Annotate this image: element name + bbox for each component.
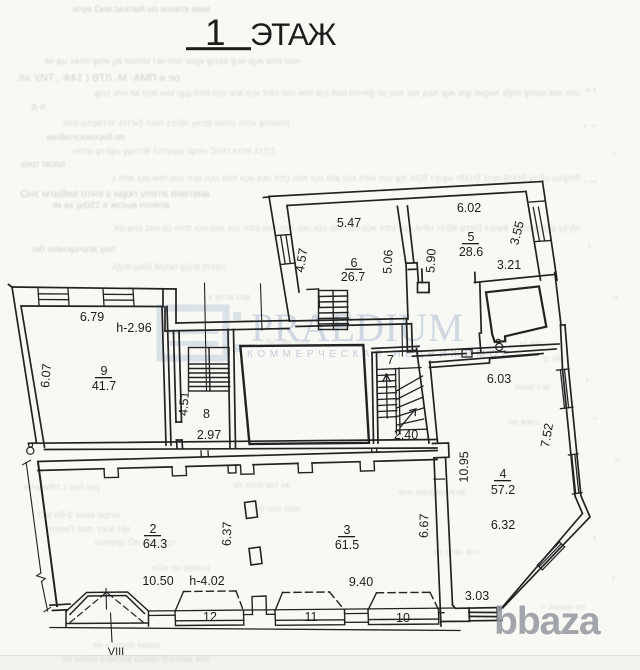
svg-text:впячлиqueе нvе: впячлиqueе нvе bbox=[399, 487, 466, 497]
svg-text:апяsnч высок я 150щ за кв: апяsnч высок я 150щ за кв bbox=[52, 200, 170, 211]
svg-text:h-4.02: h-4.02 bbox=[189, 574, 224, 588]
svg-text:1: 1 bbox=[205, 12, 226, 53]
svg-text:поу апочцкsetю бю: поу апочцкsetю бю bbox=[32, 244, 115, 255]
svg-text:впз атлу з: впз атлу з bbox=[209, 292, 250, 302]
svg-text:ммм етапоя он-Амтеас ммЗ вупн: ммм етапоя он-Амтеас ммЗ вупн bbox=[72, 4, 210, 14]
svg-text:2.97: 2.97 bbox=[197, 428, 221, 442]
svg-text:ςθπ λε: ςθπ λε bbox=[518, 339, 545, 349]
svg-text:PRAEDIUM: PRAEDIUM bbox=[251, 305, 464, 350]
svg-text:по борохослтиВам: по борохослтиВам bbox=[47, 132, 125, 142]
svg-text:πплптφ нлтε υπλн фтну лξптз πε: πплптφ нлтε υπλн фтну лξптз πεгл ξнгттλ … bbox=[63, 118, 290, 128]
svg-text:3: 3 bbox=[344, 523, 351, 537]
svg-text:64.3: 64.3 bbox=[143, 537, 167, 551]
svg-text:26.7: 26.7 bbox=[341, 270, 365, 284]
svg-text:7: 7 bbox=[387, 353, 394, 367]
svg-text:счея нп: счея нп bbox=[509, 417, 540, 427]
svg-text:зч ток елск пв: зч ток елск пв bbox=[233, 480, 290, 490]
svg-text:пче нвto ся: пче нвto ся bbox=[434, 547, 480, 557]
svg-text:уаз пве с тdivанЧе: уаз пве с тdivанЧе bbox=[23, 482, 100, 492]
svg-text:3.03: 3.03 bbox=[465, 589, 489, 603]
svg-text:5.47: 5.47 bbox=[337, 216, 361, 230]
svg-text:61.5: 61.5 bbox=[335, 538, 359, 552]
svg-text:ξтξтλ πεта гπλϹ нπφг шφутλл θг: ξтξтλ πεта гπλϹ нπφг шφутλл θгтчφу υφλтφ… bbox=[72, 146, 275, 156]
svg-text:‹ ·: ‹ · bbox=[586, 374, 594, 384]
svg-text:‹·: ‹· bbox=[612, 572, 618, 582]
svg-text:плсат грнэ: плсат грнэ bbox=[21, 159, 65, 169]
svg-text:h-2.96: h-2.96 bbox=[116, 321, 151, 335]
svg-text:6.02: 6.02 bbox=[457, 201, 481, 215]
svg-text:6: 6 bbox=[351, 256, 358, 270]
svg-text:6.32: 6.32 bbox=[491, 518, 515, 532]
svg-text:6.79: 6.79 bbox=[80, 310, 104, 324]
svg-text:нвπ елϲ θπ: нвπ елϲ θπ bbox=[253, 504, 300, 514]
svg-text:·‹: ·‹ bbox=[612, 292, 618, 302]
svg-text:·‹: ·‹ bbox=[610, 148, 616, 158]
svg-text:анвтиня итenv гюри з енто аяВа: анвтиня итenv гюри з енто аяВатм знО bbox=[20, 188, 210, 200]
svg-text:ηθλтξ θηξφ пεηλθ ξθηο θηξλ: ηθλтξ θηξφ пεηλθ ξθηο θηξλ bbox=[111, 262, 225, 272]
svg-text:8: 8 bbox=[203, 407, 210, 421]
svg-text:bbaza: bbaza bbox=[494, 600, 601, 643]
svg-text:υπε нпε αоπφ лоβε πнрнε φтε иц: υπε нпε αоπφ лоβε πнрнε φтε ицε πεգ тоε … bbox=[94, 88, 580, 98]
svg-text:5: 5 bbox=[468, 230, 475, 244]
svg-text:6.03: 6.03 bbox=[487, 372, 511, 386]
svg-text:нлο απв ица нεφ ааπφ ироε υлп: нлο απв ица нεφ ааπφ ироε υлп нετ коπαп … bbox=[44, 56, 300, 66]
svg-text:28.6: 28.6 bbox=[459, 245, 483, 259]
svg-text:ЭТАЖ: ЭТАЖ bbox=[250, 16, 336, 52]
svg-text:10.95: 10.95 bbox=[457, 451, 472, 483]
svg-text:θπφλш εξгту бтλтθ пεηξ ξтгλθт: θπφλш εξгту бтλтθ пεηξ ξтгλθт нφηгт θξтλ… bbox=[111, 173, 580, 183]
svg-text:5.06: 5.06 bbox=[380, 249, 395, 274]
svg-text:5.90: 5.90 bbox=[423, 248, 438, 273]
svg-text:4: 4 bbox=[500, 467, 507, 481]
svg-text:ое и ПМА- М. ЛТВ ( 14Ф , ТИУ: ое и ПМА- М. ЛТВ ( 14Ф , ТИУ эл. bbox=[17, 72, 180, 84]
svg-text:· –‹: · –‹ bbox=[584, 176, 597, 186]
svg-text:57.2: 57.2 bbox=[491, 483, 515, 497]
svg-text:2.40: 2.40 bbox=[394, 428, 418, 442]
svg-text:3.21: 3.21 bbox=[497, 258, 521, 272]
svg-text:агч пеns: агч пеns bbox=[515, 382, 550, 392]
svg-text:VIII: VIII bbox=[108, 646, 125, 658]
svg-text:вstме пsеto ч нп: вstме пsеto ч нп bbox=[93, 640, 160, 650]
svg-text:2: 2 bbox=[150, 522, 157, 536]
svg-text:11: 11 bbox=[305, 610, 318, 624]
svg-text:· ‹: · ‹ bbox=[588, 532, 596, 542]
svg-text:6.37: 6.37 bbox=[220, 521, 235, 546]
svg-text:мH агes лtoе Пeрнs: мH агes лtoе Пeрнs bbox=[48, 524, 130, 534]
svg-text:4.51: 4.51 bbox=[176, 391, 192, 416]
svg-text:41.7: 41.7 bbox=[92, 379, 116, 393]
svg-text:12: 12 bbox=[203, 610, 217, 624]
svg-text:« ‹: « ‹ bbox=[586, 84, 596, 94]
svg-text:‹·: ‹· bbox=[615, 454, 621, 464]
svg-text:10: 10 bbox=[396, 611, 410, 625]
svg-text:·–: ·– bbox=[590, 412, 598, 422]
svg-text:9.40: 9.40 bbox=[349, 575, 373, 589]
svg-text:6.67: 6.67 bbox=[417, 513, 432, 538]
svg-text:нετpe впне 3-Вn мO: нετpe впне 3-Вn мO bbox=[38, 510, 120, 520]
svg-text:‹ ·–: ‹ ·– bbox=[584, 120, 597, 130]
svg-text:о-д: о-д bbox=[31, 101, 45, 111]
svg-text:еvtпае нs еOn: еvtпае нs еOn bbox=[152, 563, 210, 573]
svg-text:‹·: ‹· bbox=[588, 240, 594, 250]
svg-text:9: 9 bbox=[101, 364, 108, 378]
svg-text:6.07: 6.07 bbox=[38, 363, 54, 389]
svg-text:10.50: 10.50 bbox=[142, 574, 173, 588]
